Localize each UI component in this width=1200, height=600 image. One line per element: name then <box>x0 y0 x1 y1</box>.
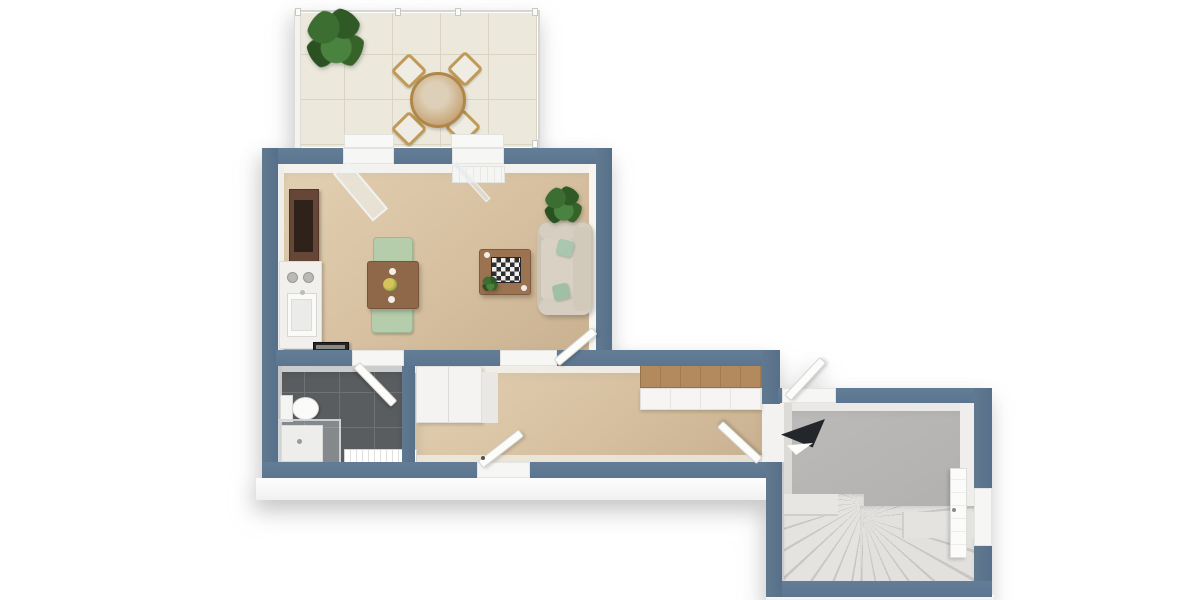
wall-stair-south <box>766 581 992 597</box>
toilet-bowl <box>292 397 319 420</box>
table-item <box>521 285 527 291</box>
railing-post <box>532 8 538 16</box>
wall-face <box>276 366 402 372</box>
sofa-backrest <box>573 227 591 311</box>
coffee-table-plant <box>482 276 498 292</box>
stair-passage-threshold <box>762 403 784 462</box>
stair-top-step <box>784 494 838 516</box>
terrace-plant <box>306 8 364 72</box>
wall-living-east <box>596 148 612 366</box>
building-render <box>0 0 1200 600</box>
sideboard-wood-top <box>640 364 762 388</box>
plate <box>388 296 395 303</box>
terrace-railing-left-rail <box>294 10 301 150</box>
wall-west <box>262 148 278 478</box>
door-handle <box>952 508 956 512</box>
hall-wardrobe <box>416 366 482 423</box>
wardrobe-seam <box>448 367 449 422</box>
wall-north <box>262 148 612 164</box>
shower-drain <box>297 439 302 444</box>
wall-face <box>415 455 762 462</box>
window-sill-outside <box>451 134 504 148</box>
tv-screen <box>294 200 313 252</box>
table-centerpiece <box>383 278 397 291</box>
living-room-plant <box>544 186 582 226</box>
terrace-round-table <box>410 72 466 128</box>
dining-chair-green <box>371 305 413 333</box>
wall-face <box>276 164 598 173</box>
railing-post <box>395 8 401 16</box>
hob-burner <box>303 272 314 283</box>
stair-hall-exterior-door-panel <box>950 468 967 558</box>
wall-bathroom-east <box>402 366 415 462</box>
foundation-slab <box>256 478 780 500</box>
door-handle <box>481 456 485 460</box>
table-item <box>484 252 490 258</box>
opening-living-hall <box>500 350 557 366</box>
plate <box>389 268 396 275</box>
opening-window <box>452 148 504 164</box>
railing-post <box>532 140 538 148</box>
faucet <box>300 290 305 295</box>
floorplan-canvas <box>0 0 1200 600</box>
sofa-pillow-green <box>552 283 571 302</box>
wall-hall-north <box>610 350 764 366</box>
sink-basin <box>291 299 312 331</box>
hob-burner <box>287 272 298 283</box>
shower-tray <box>281 425 323 462</box>
stove-handle <box>316 345 345 349</box>
wall-face <box>784 403 974 411</box>
sideboard-front <box>640 388 762 410</box>
opening-terrace-door <box>343 148 394 164</box>
terrace-door-sill <box>344 134 394 148</box>
wardrobe-side-face <box>482 372 498 423</box>
opening-stair-exterior-door <box>974 488 992 546</box>
dining-chair-green <box>373 237 413 264</box>
wall-stair-west <box>766 462 782 597</box>
railing-post <box>295 8 301 16</box>
railing-post <box>455 8 461 16</box>
